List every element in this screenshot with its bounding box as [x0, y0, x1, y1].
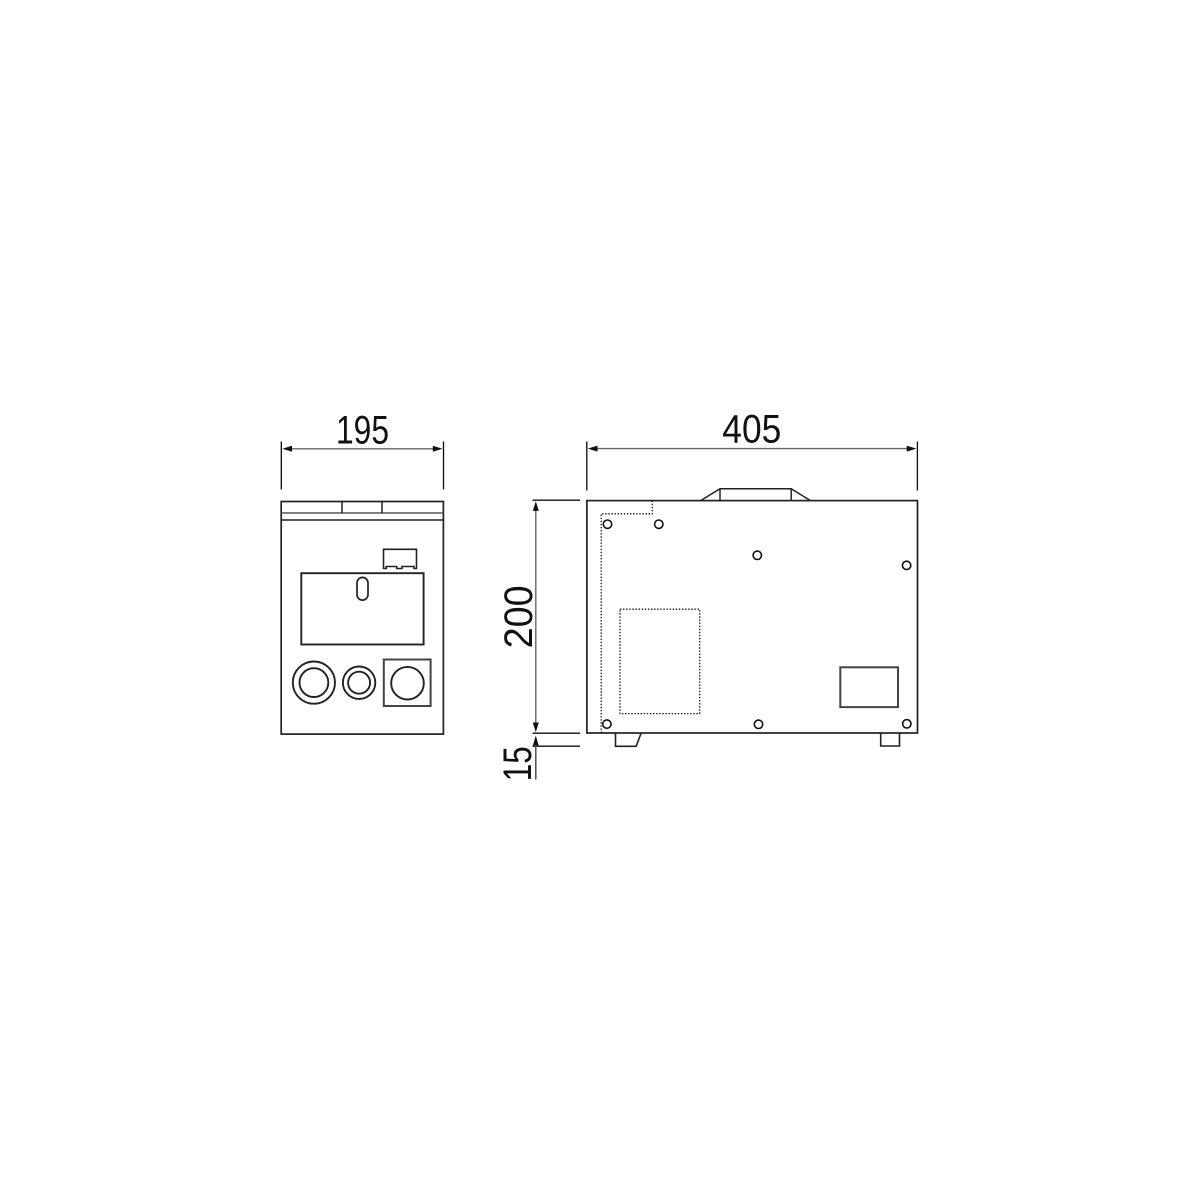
svg-text:405: 405 — [722, 408, 781, 452]
svg-text:200: 200 — [497, 585, 541, 648]
svg-text:195: 195 — [336, 408, 389, 452]
svg-text:15: 15 — [496, 746, 540, 781]
